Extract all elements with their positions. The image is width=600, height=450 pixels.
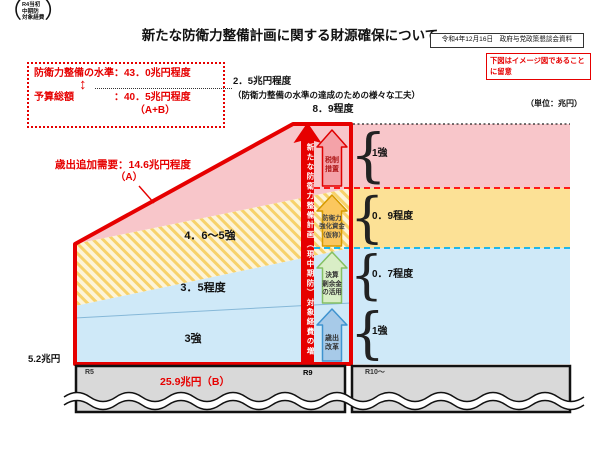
dotted-connector-line — [95, 88, 232, 89]
surplus-arrow-label: 決算 剰余金 の活用 — [315, 272, 349, 298]
budget-total-line: 予算総額 ：40．5兆円程度 — [34, 92, 191, 104]
area-label-hatched: 4．6～5強 — [158, 230, 262, 243]
area-label-bottom-blue: 3強 — [158, 333, 228, 346]
notice-box: 下図はイメージ図であることに留意 — [486, 53, 591, 80]
main-arrow-vertical-text: 新たな防衛力整備計画（現中期防）対象経費の増 — [300, 143, 315, 365]
additional-demand-sub: （A） — [55, 172, 203, 184]
axis-label-r9: R9 — [303, 368, 313, 377]
band-value-tax: 1強 — [372, 148, 388, 160]
unit-label: （単位：兆円） — [516, 99, 582, 109]
fund-arrow-label: 防衛力 強化資金 （仮称） — [313, 215, 351, 240]
brace-band-reform: { — [350, 304, 366, 363]
total-height-label: 8．9程度 — [300, 104, 366, 116]
budget-total-note: （A+B） — [100, 105, 210, 117]
baseline-total-b: 25.9兆円（B） — [125, 376, 265, 389]
wave-break-mask — [64, 397, 584, 406]
axis-label-r10: R10～ — [365, 369, 385, 377]
updown-arrow-icon: ↕ — [79, 76, 87, 94]
reform-arrow-label: 歳出 改革 — [316, 334, 348, 352]
defense-level-line: 防衛力整備の水準：43．0兆円程度 — [34, 68, 191, 80]
band-value-fund: 0．9程度 — [372, 211, 413, 223]
additional-demand-label: 歳出追加需要：14.6兆円程度 — [55, 159, 191, 172]
brace-band-fund: { — [350, 189, 366, 247]
brace-band-tax: { — [350, 124, 366, 186]
tax-arrow-label: 税制 措置 — [316, 156, 348, 174]
band-blue — [353, 248, 570, 364]
axis-label-r5: R5 — [85, 369, 94, 377]
band-value-surplus: 0．7程度 — [372, 269, 413, 281]
gap-value: 2．5兆円程度 — [233, 76, 291, 87]
source-note-box: 令和4年12月16日 政府与党政策懇談会資料 — [430, 33, 584, 48]
band-value-reform: 1強 — [372, 326, 388, 338]
baseline-left-value: 5.2兆円 — [28, 354, 60, 365]
brace-band-surplus: { — [350, 248, 366, 304]
gap-note: （防衛力整備の水準の達成のための様々な工夫） — [233, 90, 420, 100]
slide-canvas: 新たな防衛力整備計画に関する財源確保について 令和4年12月16日 政府与党政策… — [0, 0, 600, 450]
area-label-mid-blue: 3．5程度 — [158, 282, 248, 295]
annotation-pointer-line — [139, 186, 154, 203]
